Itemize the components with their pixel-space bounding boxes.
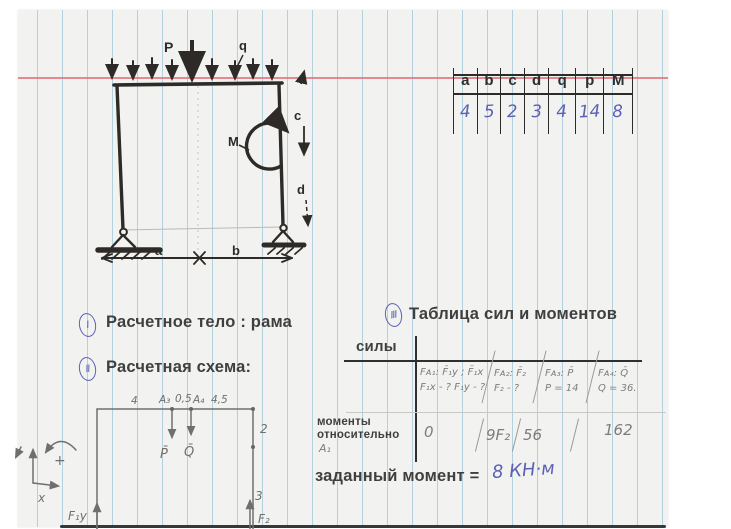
moments-row-label-1: моменты [317,416,371,428]
param-column: p 14 [575,68,604,134]
param-column: c 2 [500,68,524,134]
scheme-dim-3: 3 [255,489,263,503]
section-2-title: Расчетная схема: [106,358,251,377]
scheme-dim-05: 0,5 [175,393,192,405]
scheme-axis-x-label: x [37,491,46,505]
mid-column-dot [251,445,255,449]
load-q-label: q [239,38,247,53]
param-header: M [604,68,632,93]
table-header-rule [453,93,633,95]
parameters-table: a 4 b 5 c 2 d 3 q 4 p 14 [453,68,633,134]
param-column: d 3 [524,68,549,134]
forces-table-left-rule [415,336,417,462]
scheme-point-a3: A₃ [158,394,170,406]
param-value: 8 [603,92,633,134]
section-1-title: Расчетное тело : рама [106,313,292,332]
frame-right-column [279,85,283,225]
scheme-point-a4: A₄ [192,394,205,406]
moment-m-label: M [228,134,239,149]
force-p-label: P [164,39,173,55]
given-moment-label: заданный момент = [315,467,479,486]
pin-connection-line [123,227,283,230]
param-column: q 4 [548,68,575,134]
param-header: c [501,68,524,93]
forces-cell-1: Fᴀ₁: F̄₁y ; F̄₁x F₁x - ? F₁y - ? [420,365,485,395]
param-header: q [549,68,575,93]
scheme-frame [97,409,253,529]
scheme-force-p-label: P̄ [160,447,168,462]
moment-value-2: 9F₂ [486,426,510,444]
param-header: p [576,68,604,93]
forces-cell-2: Fᴀ₂: F̄₂ F₂ - ? [494,366,526,396]
frame-diagram: P q M c d [58,28,323,283]
scanned-worksheet: P q M c d [0,0,731,529]
scheme-f2-label: F₂ [258,512,270,526]
corner-dot [251,407,255,411]
param-value: 2 [500,92,525,134]
dim-c-label: c [294,108,301,123]
moment-value-3: 56 [523,426,542,444]
moments-row-label-3: A₁ [319,442,331,455]
param-column: a 4 [453,68,477,134]
param-value: 14 [575,92,605,134]
param-header: b [478,68,501,93]
dimension-c-d [301,72,308,225]
table-top-rule [453,74,633,76]
calculation-scheme: 4 A₃ 0,5 A₄ 4,5 P̄ Q̄ 2 3 F₁y F₂ x + [2,376,312,529]
scheme-dim-4: 4 [131,395,138,407]
forces-table-row-divider [346,412,666,413]
moment-value-4: 162 [604,421,633,439]
param-header: d [525,68,549,93]
load-q-leader [235,55,243,71]
scheme-dim-45: 4,5 [211,394,228,406]
scheme-rotation-plus: + [54,453,66,469]
moment-value-1: 0 [424,423,434,441]
dimension-a-b [102,252,292,264]
frame-beam [114,83,282,85]
param-value: 4 [548,92,576,134]
scheme-dim-2: 2 [260,422,268,436]
section-3-title: Таблица сил и моментов [409,305,617,324]
dim-d-label: d [297,182,305,197]
scheme-f1y-label: F₁y [68,509,88,523]
param-column: b 5 [477,68,501,134]
param-value: 4 [453,92,478,134]
param-value: 5 [477,92,502,134]
param-value: 3 [524,92,550,134]
moments-row-label-2: относительно [317,429,399,441]
scheme-axis-x [33,483,58,486]
dim-b-label: b [232,243,240,258]
forces-row-label: силы [356,338,397,355]
scheme-rotation-arc [46,441,76,452]
right-support [264,231,304,254]
given-moment-value: 8 КН·м [491,458,555,483]
forces-cell-3: Fᴀ₃: P̄ P = 14 [545,366,579,396]
scheme-force-q-label: Q̄ [184,445,194,460]
forces-cell-4: Fᴀ₄: Q̄ Q = 36. [598,366,637,396]
dim-a-label: a [155,243,163,258]
scheme-axis-tick [16,447,21,457]
param-column: M 8 [603,68,633,134]
param-header: a [454,68,477,93]
frame-left-column [117,86,123,229]
